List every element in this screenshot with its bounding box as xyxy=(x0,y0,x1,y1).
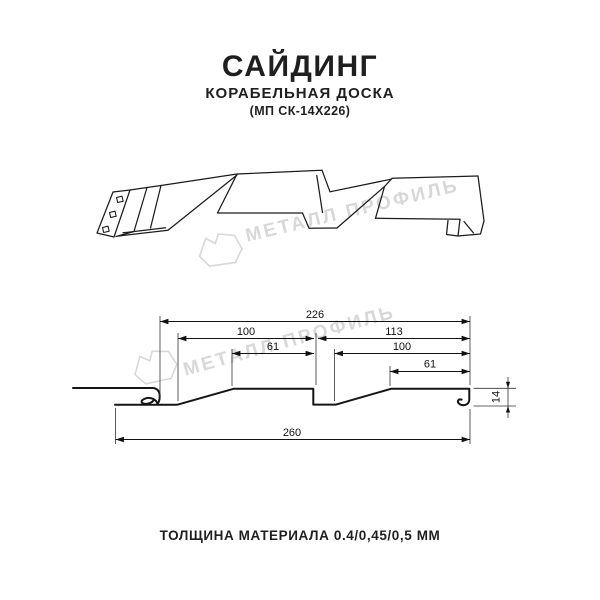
board2-top-near xyxy=(376,218,461,219)
page-subtitle: КОРАБЕЛЬНАЯ ДОСКА xyxy=(0,85,600,102)
j-hook-return xyxy=(447,221,459,237)
dim-label-100-right: 100 xyxy=(393,341,411,353)
step-bottom xyxy=(303,213,338,228)
dimension-labels: 226 100 113 61 100 61 260 14 xyxy=(237,309,503,439)
dim-label-100-left: 100 xyxy=(237,326,255,338)
profile-outline xyxy=(115,389,469,405)
model-code: (МП СК-14Х226) xyxy=(0,104,600,118)
board2-end-cap xyxy=(376,187,385,219)
hem-fold xyxy=(116,188,147,237)
board1-end-cap xyxy=(218,174,238,213)
right-end-edge xyxy=(478,176,484,221)
material-thickness-note: ТОЛЩИНА МАТЕРИАЛА 0.4/0,45/0,5 ММ xyxy=(0,528,600,543)
cross-section-profile xyxy=(73,388,469,405)
board2-top-far xyxy=(392,176,478,178)
step-far-edge xyxy=(322,170,330,192)
arrow-icon xyxy=(506,382,510,389)
nail-hole-icon xyxy=(117,196,124,202)
profile-3d-sketch xyxy=(97,170,484,237)
extension-lines xyxy=(116,316,517,444)
dim-label-113: 113 xyxy=(385,326,403,338)
dim-label-226: 226 xyxy=(306,309,324,321)
j-hook xyxy=(458,219,484,236)
board2-slope-edge xyxy=(337,178,392,228)
page-title: САЙДИНГ xyxy=(0,50,600,84)
page: МЕТАЛЛ ПРОФИЛЬ МЕТАЛЛ ПРОФИЛЬ xyxy=(0,0,600,600)
dimension-lines xyxy=(116,322,511,440)
board1-top-far xyxy=(237,170,322,174)
j-hook-inner xyxy=(464,222,474,234)
dim-label-61-left: 61 xyxy=(267,341,279,353)
nail-hole-icon xyxy=(103,226,110,232)
hem-bottom-edge xyxy=(119,228,169,236)
lock-seam-curl xyxy=(142,398,158,404)
arrow-icon xyxy=(506,406,510,413)
nail-hole-icon xyxy=(110,211,117,217)
adjacent-panel-edge xyxy=(73,388,160,404)
step-near-edge xyxy=(317,176,323,213)
lock-fold xyxy=(147,186,161,229)
dim-label-61-right: 61 xyxy=(424,359,436,371)
dim-label-14: 14 xyxy=(491,391,503,403)
dim-label-260: 260 xyxy=(283,427,301,439)
nail-strip xyxy=(97,190,130,237)
